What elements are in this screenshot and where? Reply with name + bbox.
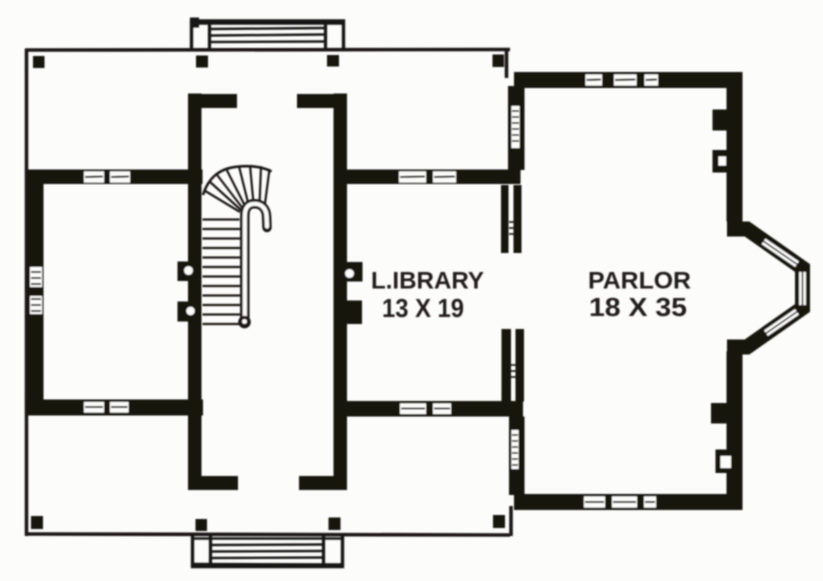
svg-text:18 X 35: 18 X 35 [589,292,687,322]
svg-text:L.IBRARY: L.IBRARY [371,268,484,295]
svg-text:13 X 19: 13 X 19 [382,293,464,323]
svg-text:PARLOR: PARLOR [588,268,691,295]
